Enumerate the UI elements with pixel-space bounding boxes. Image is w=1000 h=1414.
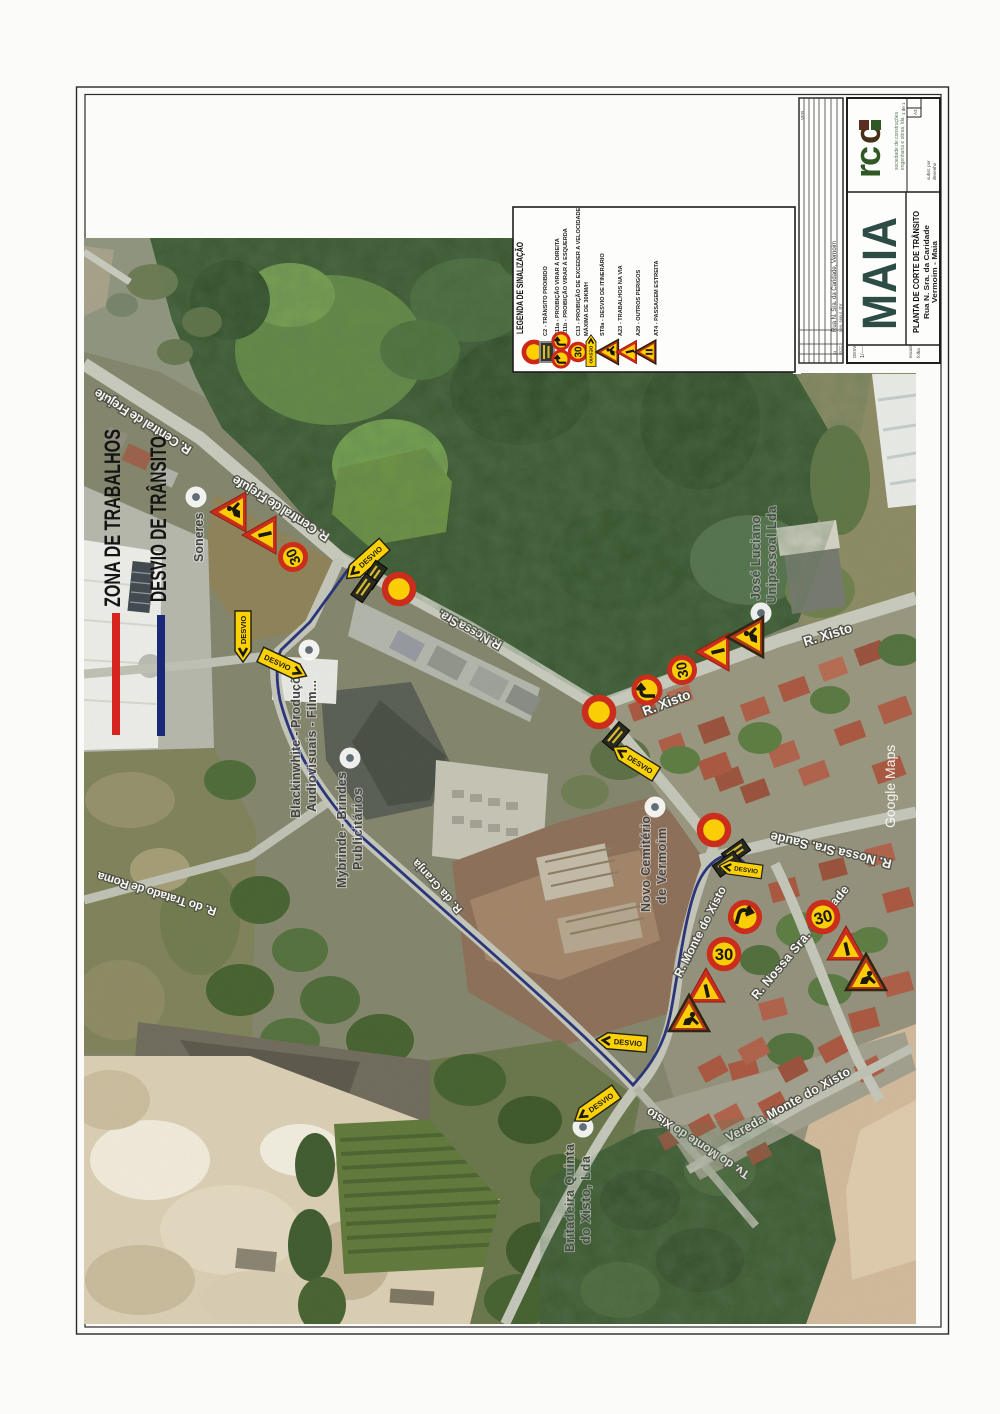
svg-text:MÁXIMA DE 30KM/H: MÁXIMA DE 30KM/H	[583, 282, 590, 336]
svg-text:folha: folha	[916, 348, 921, 358]
svg-text:BCC: BCC	[838, 345, 843, 355]
svg-text:desenho: desenho	[932, 162, 937, 180]
svg-text:1 de 1: 1 de 1	[901, 102, 906, 115]
svg-text:rc: rc	[847, 147, 888, 178]
svg-text:1/----: 1/----	[860, 346, 866, 358]
svg-text:DESV.: DESV.	[852, 345, 857, 358]
svg-text:ST8a - DESVIO DE ITINERÁRIO: ST8a - DESVIO DE ITINERÁRIO	[599, 253, 606, 336]
svg-text:C13 - PROIBIÇÃO DE EXCEDER A V: C13 - PROIBIÇÃO DE EXCEDER A VELOCIDADE	[575, 207, 582, 336]
svg-text:Vermoim - Maia: Vermoim - Maia	[930, 240, 939, 303]
svg-text:C11a - PROIBIÇÃO VIRAR À DIREI: C11a - PROIBIÇÃO VIRAR À DIREITA	[554, 238, 561, 336]
svg-text:C2 - TRÂNSITO PROIBIDO: C2 - TRÂNSITO PROIBIDO	[542, 266, 549, 336]
svg-text:A3: A3	[913, 109, 918, 115]
svg-text:ZONA DE TRABALHOS: ZONA DE TRABALHOS	[100, 429, 125, 607]
svg-text:engenharia e obras, lda: engenharia e obras, lda	[900, 117, 906, 170]
svg-text:PLANTA DE CORTE DE TRÂNSITO: PLANTA DE CORTE DE TRÂNSITO	[910, 211, 921, 333]
svg-text:C11b - PROIBIÇÃO VIRAR À ESQUE: C11b - PROIBIÇÃO VIRAR À ESQUERDA	[562, 228, 569, 336]
svg-text:MAIA: MAIA	[854, 216, 907, 330]
svg-text:A23 - TRABALHOS NA VIA: A23 - TRABALHOS NA VIA	[618, 265, 624, 336]
svg-text:escala: escala	[908, 344, 913, 358]
svg-text:A29 - OUTROS PERIGOS: A29 - OUTROS PERIGOS	[636, 270, 642, 336]
svg-text:LEGENDA DE SINALIZAÇÃO: LEGENDA DE SINALIZAÇÃO	[515, 242, 525, 334]
svg-text:VER: VER	[800, 110, 805, 120]
svg-text:subst. por: subst. por	[926, 160, 931, 180]
svg-text:Ig: Ig	[832, 351, 837, 355]
svg-text:AT4 - PASSAGEM ESTREITA: AT4 - PASSAGEM ESTREITA	[654, 260, 660, 336]
svg-text:DESVIO DE TRÂNSITO: DESVIO DE TRÂNSITO	[146, 436, 171, 602]
svg-text:Lev. simul. BV: Lev. simul. BV	[838, 304, 843, 332]
